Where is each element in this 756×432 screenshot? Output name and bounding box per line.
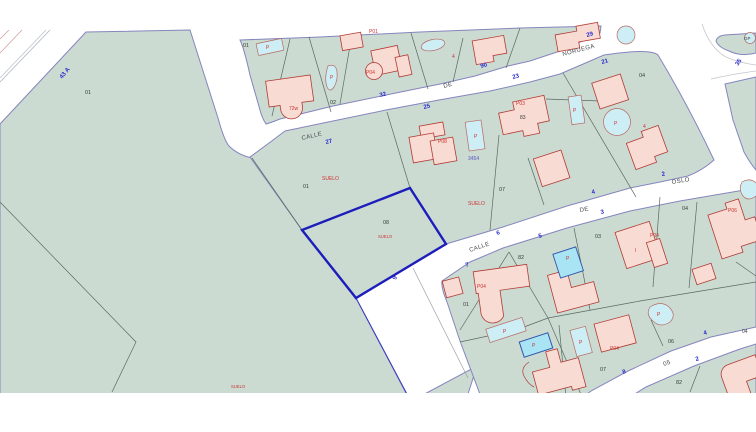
svg-text:P04: P04 [610,346,619,352]
svg-text:72w: 72w [289,106,299,112]
svg-text:P04: P04 [650,233,659,239]
svg-text:04: 04 [742,329,748,335]
svg-text:03: 03 [595,234,601,240]
svg-text:04: 04 [639,73,645,79]
svg-text:07: 07 [499,187,505,193]
svg-text:P03: P03 [516,101,525,107]
svg-text:SUELO: SUELO [378,234,393,239]
svg-text:SUELO: SUELO [231,384,246,389]
svg-text:83: 83 [520,115,526,121]
svg-text:08: 08 [383,220,389,226]
svg-text:SUELO: SUELO [322,176,339,182]
svg-text:82: 82 [518,255,524,261]
svg-text:01: 01 [463,302,469,308]
svg-text:4: 4 [643,124,646,130]
svg-text:SUELO: SUELO [468,201,485,207]
svg-text:P04: P04 [366,70,375,76]
svg-text:P04: P04 [477,284,486,290]
svg-text:P08: P08 [438,139,447,145]
svg-text:01: 01 [303,184,309,190]
svg-text:3454: 3454 [468,156,479,162]
svg-text:P06: P06 [728,208,737,214]
svg-text:02: 02 [330,100,336,106]
svg-text:82: 82 [676,380,682,386]
svg-text:07: 07 [600,367,606,373]
svg-text:GP: GP [744,36,751,41]
svg-text:I: I [635,248,636,254]
svg-text:06: 06 [668,339,674,345]
svg-text:04: 04 [682,206,688,212]
svg-text:01: 01 [85,90,91,96]
svg-text:01: 01 [243,43,249,49]
svg-text:4: 4 [452,54,455,60]
svg-text:P01: P01 [369,29,378,35]
